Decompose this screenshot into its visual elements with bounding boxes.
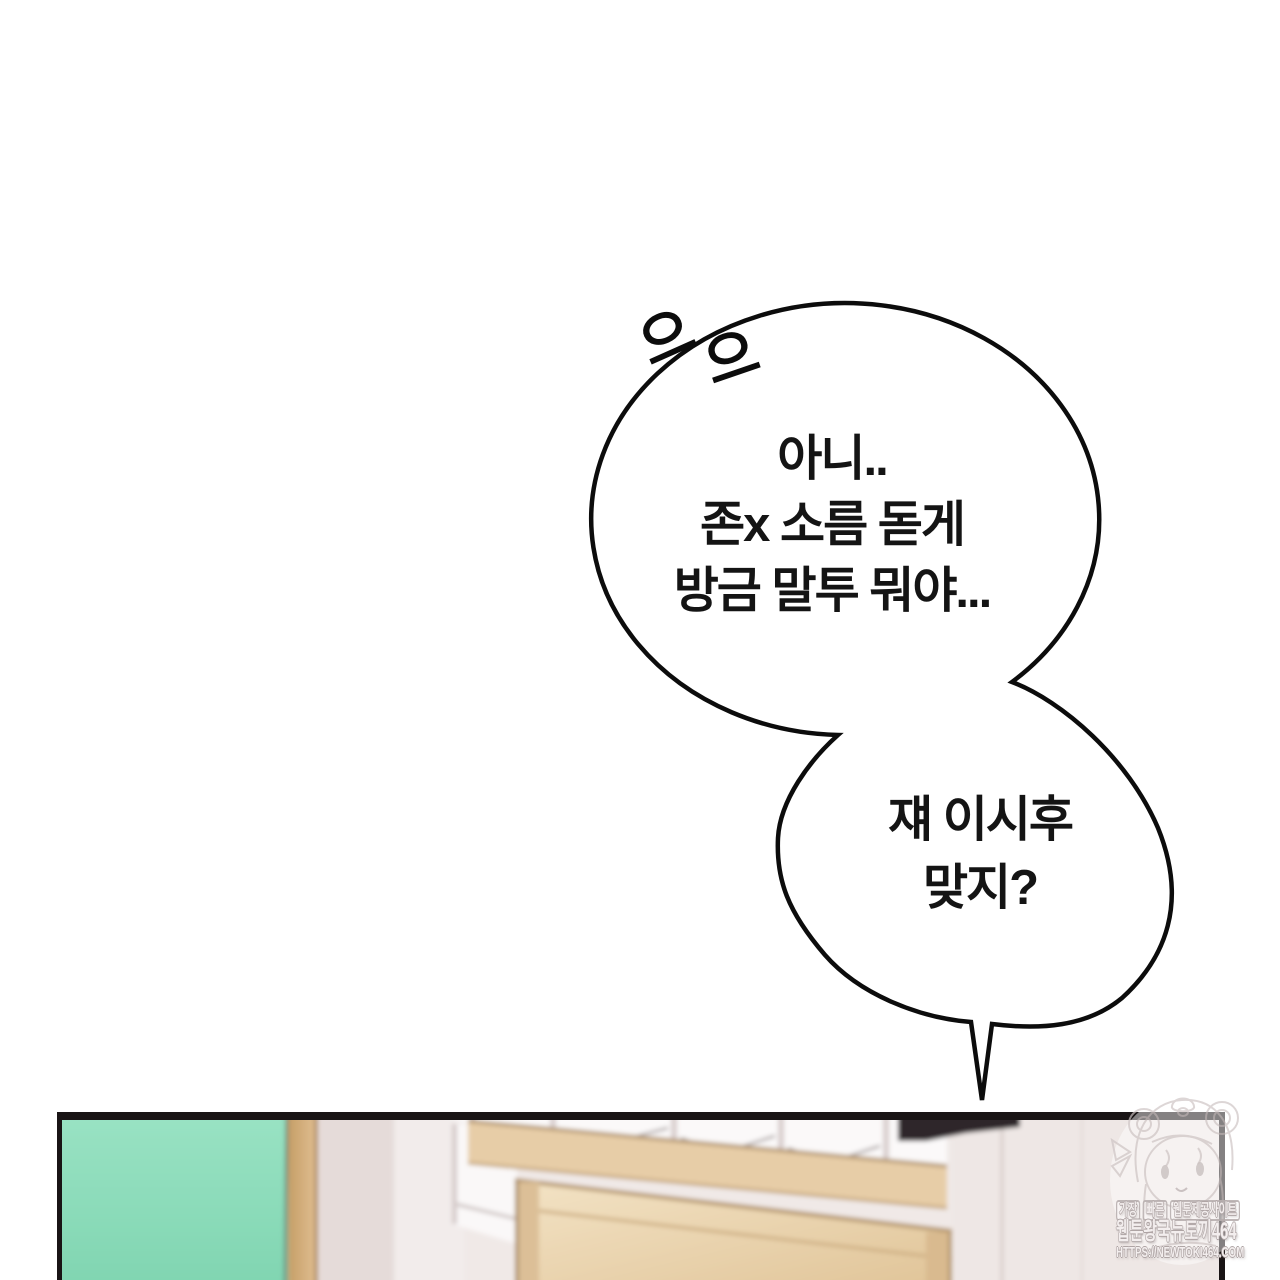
speech-bubble-outline bbox=[591, 303, 1172, 1100]
speech-bubble-2-text: 쟤 이시후 맞지? bbox=[760, 786, 1200, 922]
bubble-2-line-2: 맞지? bbox=[760, 854, 1200, 922]
green-board bbox=[50, 1106, 318, 1280]
watermark-site-url: HTTPS://NEWTOKI464.COM bbox=[1116, 1245, 1244, 1260]
bubble-2-line-1: 쟤 이시후 bbox=[760, 786, 1200, 854]
comic-artwork bbox=[0, 0, 1280, 1280]
bubble-1-line-1: 아니.. bbox=[562, 426, 1102, 492]
webtoon-page: 으 으 아니.. 존x 소름 돋게 방금 말투 뭐야... 쟤 이시후 맞지? … bbox=[0, 0, 1280, 1280]
bubble-1-line-2: 존x 소름 돋게 bbox=[562, 492, 1102, 558]
comic-panel bbox=[50, 1106, 1230, 1280]
speech-bubble-group bbox=[591, 303, 1172, 1100]
watermark-site-name: 웹툰왕국뉴토끼464 bbox=[1116, 1219, 1237, 1244]
speech-bubble-1-text: 아니.. 존x 소름 돋게 방금 말투 뭐야... bbox=[562, 426, 1102, 624]
bubble-1-line-3: 방금 말투 뭐야... bbox=[562, 558, 1102, 624]
